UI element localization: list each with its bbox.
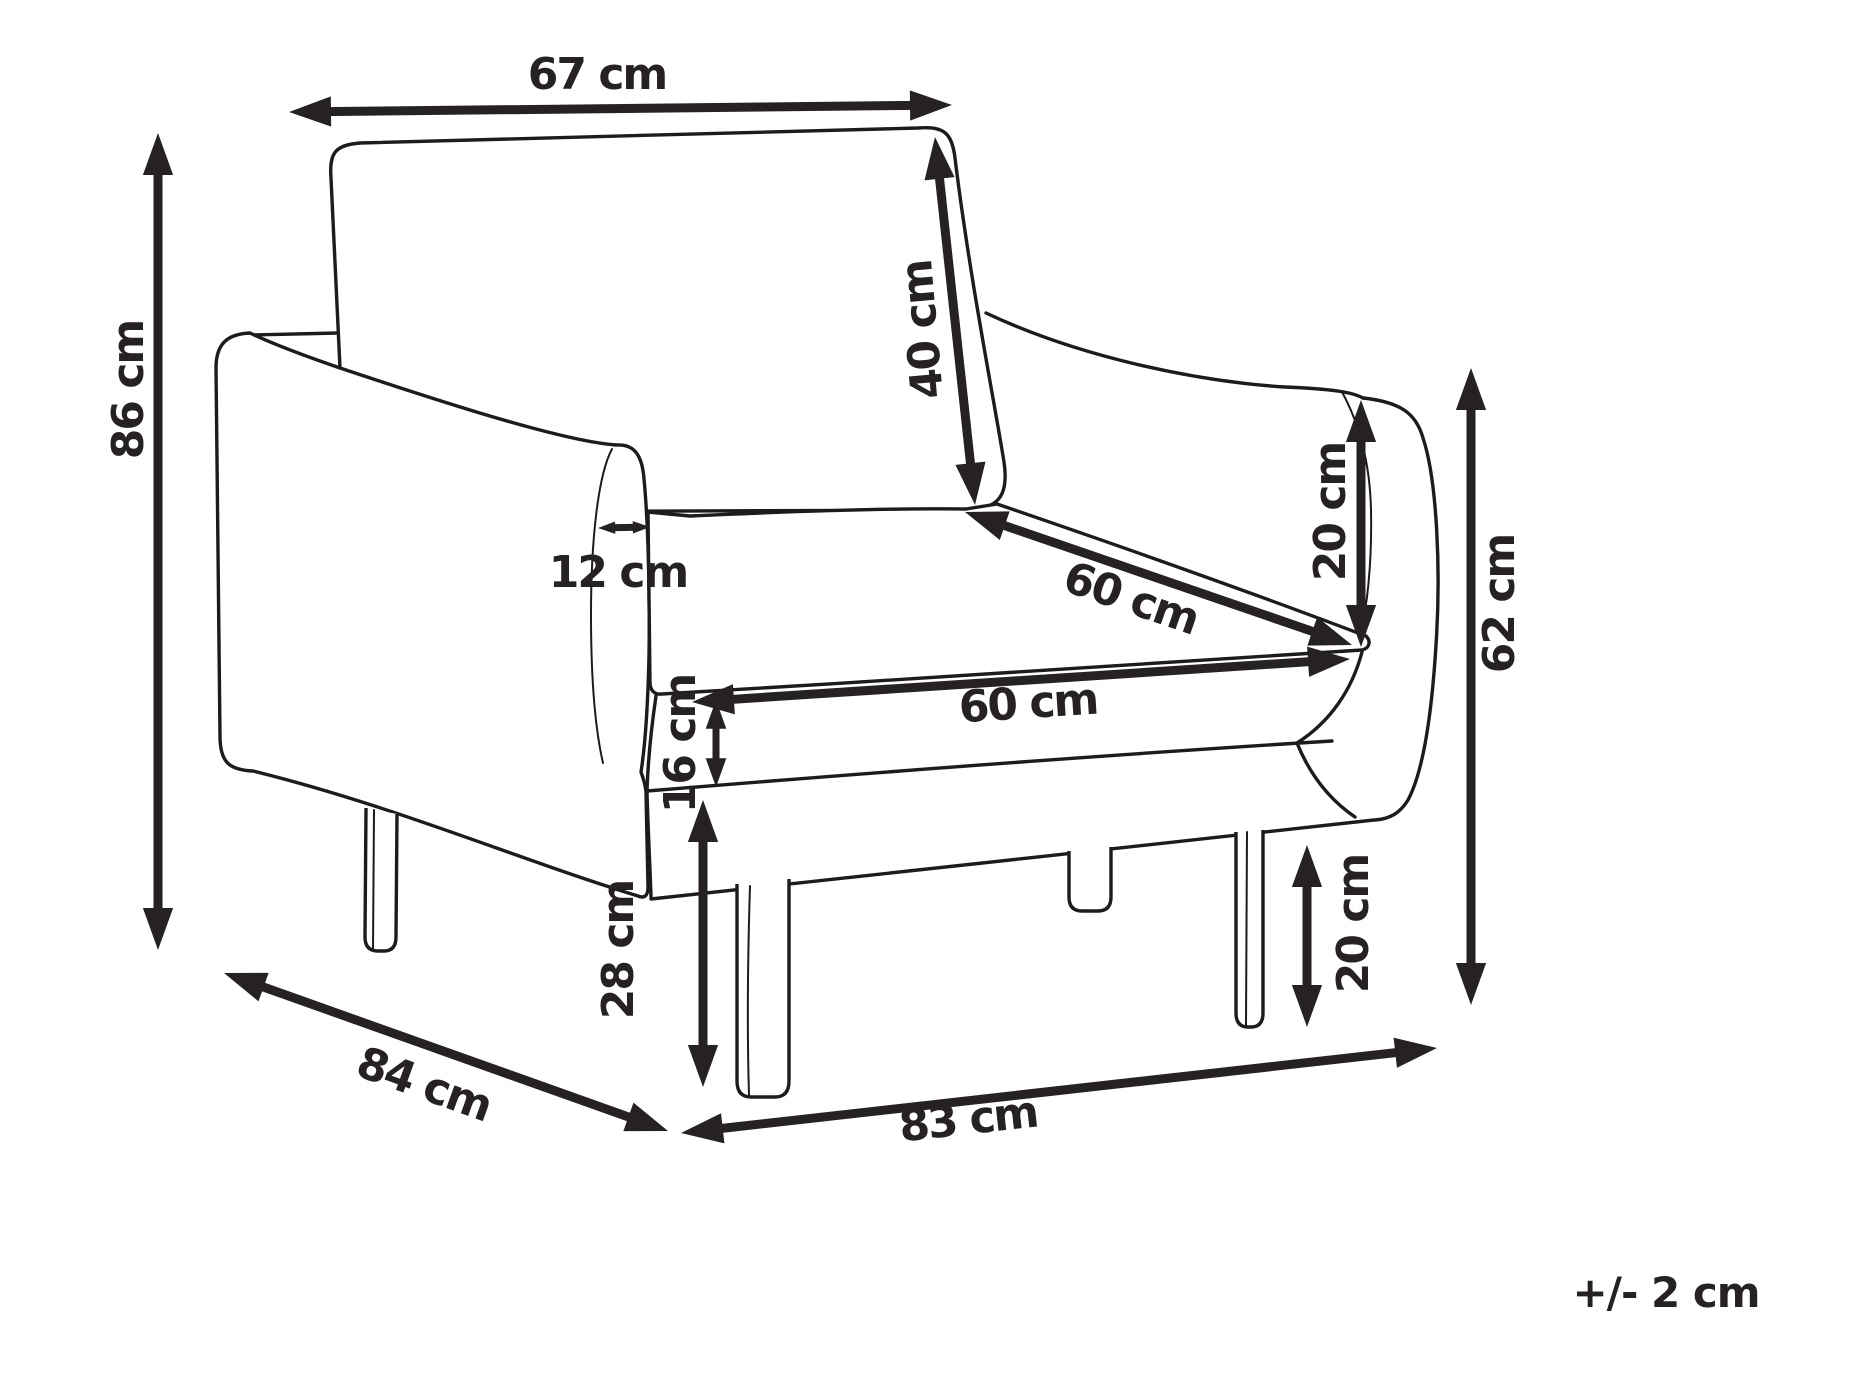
dimension-leg-height-arrow	[1292, 845, 1322, 1027]
dimension-seat-width-label: 60 cm	[957, 674, 1098, 734]
dimension-arm-height-label: 62 cm	[1474, 535, 1525, 673]
dimension-diagram: 67 cm86 cm40 cm12 cm60 cm20 cm60 cm16 cm…	[0, 0, 1849, 1387]
dimension-seat-cushion-thickness-arrow	[706, 700, 727, 787]
front-left-leg	[737, 879, 789, 1097]
dimension-leg-height-label: 20 cm	[1328, 855, 1379, 993]
seat-cushion-bottom-edge	[647, 741, 1332, 791]
dimension-total-width-label: 83 cm	[896, 1087, 1039, 1153]
back-left-leg-seam	[373, 810, 374, 949]
front-right-leg-seam	[1246, 832, 1247, 1025]
dimension-seat-cushion-thickness-label: 16 cm	[655, 675, 706, 813]
tolerance-note: +/- 2 cm	[1572, 1268, 1759, 1317]
back-left-leg	[365, 808, 397, 951]
frame-front-right-edge	[1297, 743, 1355, 817]
back-top-edge	[252, 333, 338, 335]
dimension-seat-height-arrow	[688, 800, 718, 1087]
front-right-leg	[1236, 830, 1263, 1027]
dimension-seat-height-label: 28 cm	[593, 881, 644, 1019]
right-armrest-top-edge	[986, 313, 1363, 398]
dimension-armrest-width-label: 12 cm	[549, 547, 687, 598]
dimension-armrest-above-seat-label: 20 cm	[1305, 443, 1356, 581]
rear-right-leg	[1069, 847, 1111, 911]
dimension-total-depth-label: 84 cm	[350, 1037, 498, 1132]
dimension-total-width-arrow	[681, 1038, 1437, 1144]
dimension-total-height-arrow	[143, 133, 173, 950]
dimension-top-width-label: 67 cm	[528, 49, 666, 100]
dimension-arm-height-arrow	[1456, 368, 1486, 1005]
armchair-dimension-svg: 67 cm86 cm40 cm12 cm60 cm20 cm60 cm16 cm…	[0, 0, 1849, 1387]
dimension-total-height-label: 86 cm	[103, 321, 154, 459]
